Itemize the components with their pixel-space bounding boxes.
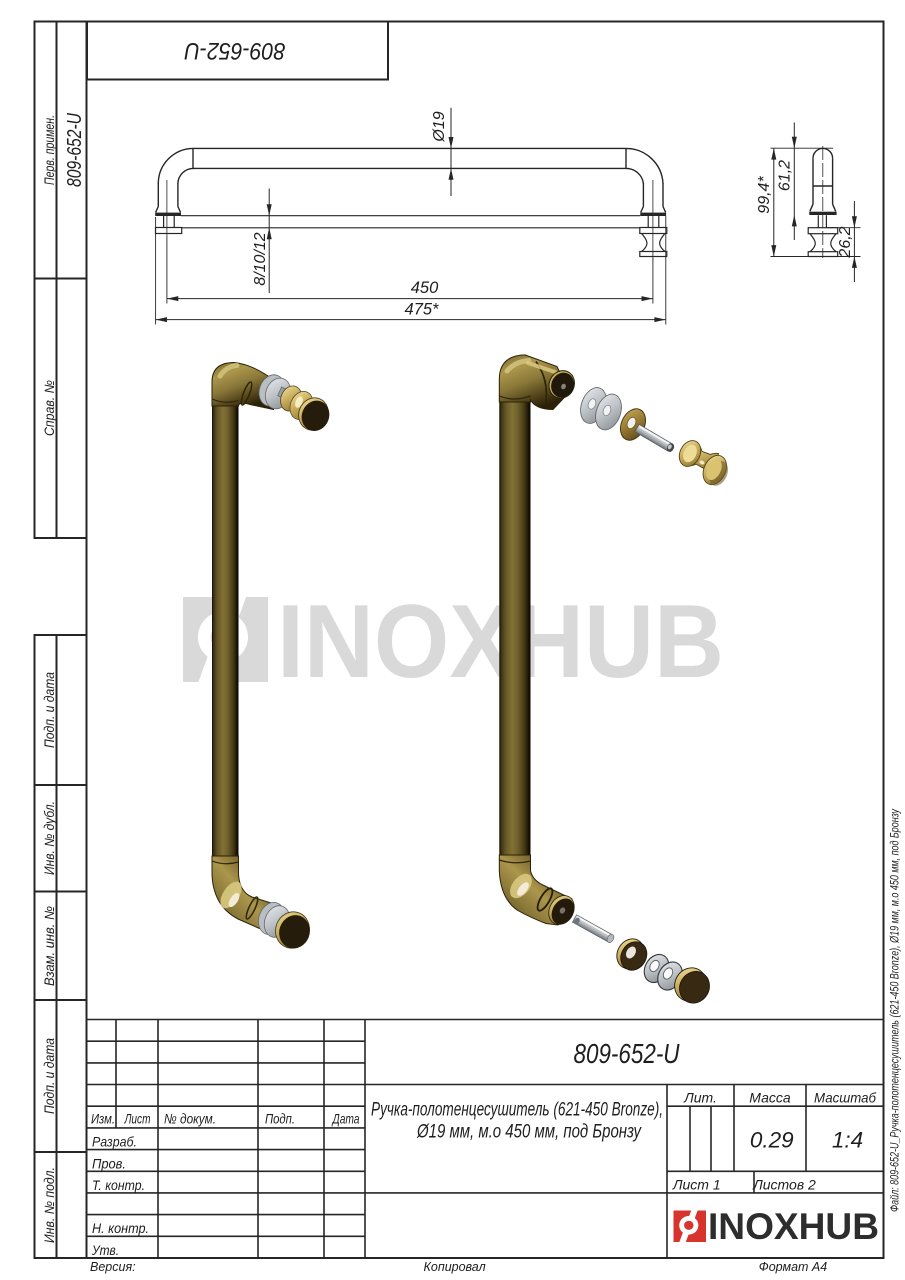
svg-text:Подп.: Подп. [265,1111,295,1127]
svg-text:61,2: 61,2 [777,160,794,191]
svg-text:450: 450 [411,279,439,297]
svg-text:Т. контр.: Т. контр. [92,1177,145,1193]
svg-text:Ручка-полотенцесушитель (621-4: Ручка-полотенцесушитель (621-450 Bronze)… [371,1099,663,1121]
svg-text:Масштаб: Масштаб [814,1090,877,1106]
svg-text:Разраб.: Разраб. [92,1134,137,1150]
svg-text:Версия:: Версия: [90,1260,136,1274]
svg-text:Изм.: Изм. [91,1111,115,1127]
svg-text:Формат А4: Формат А4 [759,1260,827,1274]
svg-text:Ø19: Ø19 [431,111,448,142]
svg-text:Лит.: Лит. [683,1090,717,1106]
svg-text:Утв.: Утв. [91,1242,119,1258]
svg-text:809-652-U: 809-652-U [574,1038,681,1069]
svg-text:Копировал: Копировал [424,1260,486,1274]
svg-text:Ø19 мм, м.о 450 мм, под Бронзу: Ø19 мм, м.о 450 мм, под Бронзу [416,1121,642,1143]
svg-text:Лист: Лист [124,1111,151,1127]
svg-text:№ докум.: № докум. [164,1111,216,1127]
svg-text:Н. контр.: Н. контр. [92,1220,149,1236]
svg-text:Пров.: Пров. [92,1155,126,1171]
svg-text:1:4: 1:4 [832,1128,863,1153]
svg-text:Инв. № подл.: Инв. № подл. [42,1167,57,1243]
svg-text:Файл: 809-652-U_Ручка-полотенц: Файл: 809-652-U_Ручка-полотенцесушитель … [888,808,902,1212]
svg-text:8/10/12: 8/10/12 [252,232,269,285]
svg-text:INOXHUB: INOXHUB [708,1206,879,1247]
svg-text:Масса: Масса [749,1090,791,1106]
svg-text:Перв. примен.: Перв. примен. [42,115,57,185]
svg-text:Лист 1: Лист 1 [672,1177,721,1193]
svg-text:Подп. и дата: Подп. и дата [42,672,57,748]
svg-text:Взам. инв. №: Взам. инв. № [42,906,57,986]
svg-text:Инв. № дубл.: Инв. № дубл. [42,801,57,875]
svg-text:809-652-U: 809-652-U [64,113,86,187]
svg-text:0.29: 0.29 [750,1128,794,1153]
svg-text:Справ. №: Справ. № [42,380,57,436]
svg-text:Дата: Дата [331,1111,360,1127]
svg-text:26,2: 26,2 [837,226,854,258]
svg-text:Листов 2: Листов 2 [752,1177,816,1193]
svg-text:Подп. и дата: Подп. и дата [42,1038,57,1114]
svg-text:475*: 475* [405,301,440,319]
svg-text:809-652-U: 809-652-U [184,37,286,64]
svg-text:99,4*: 99,4* [756,176,773,214]
